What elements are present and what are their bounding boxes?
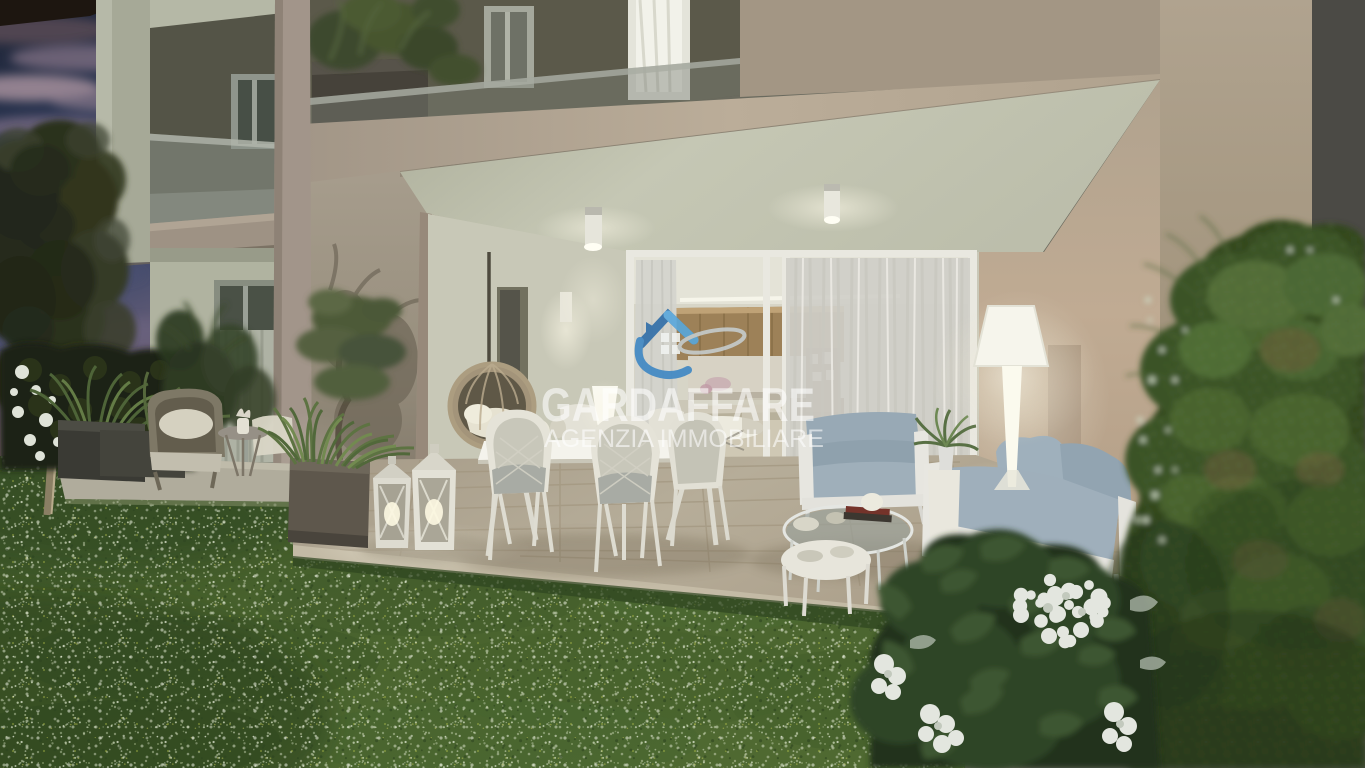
svg-text:AGENZIA IMMOBILIARE: AGENZIA IMMOBILIARE [544, 425, 824, 453]
svg-text:GARDAFFARE: GARDAFFARE [541, 378, 815, 431]
